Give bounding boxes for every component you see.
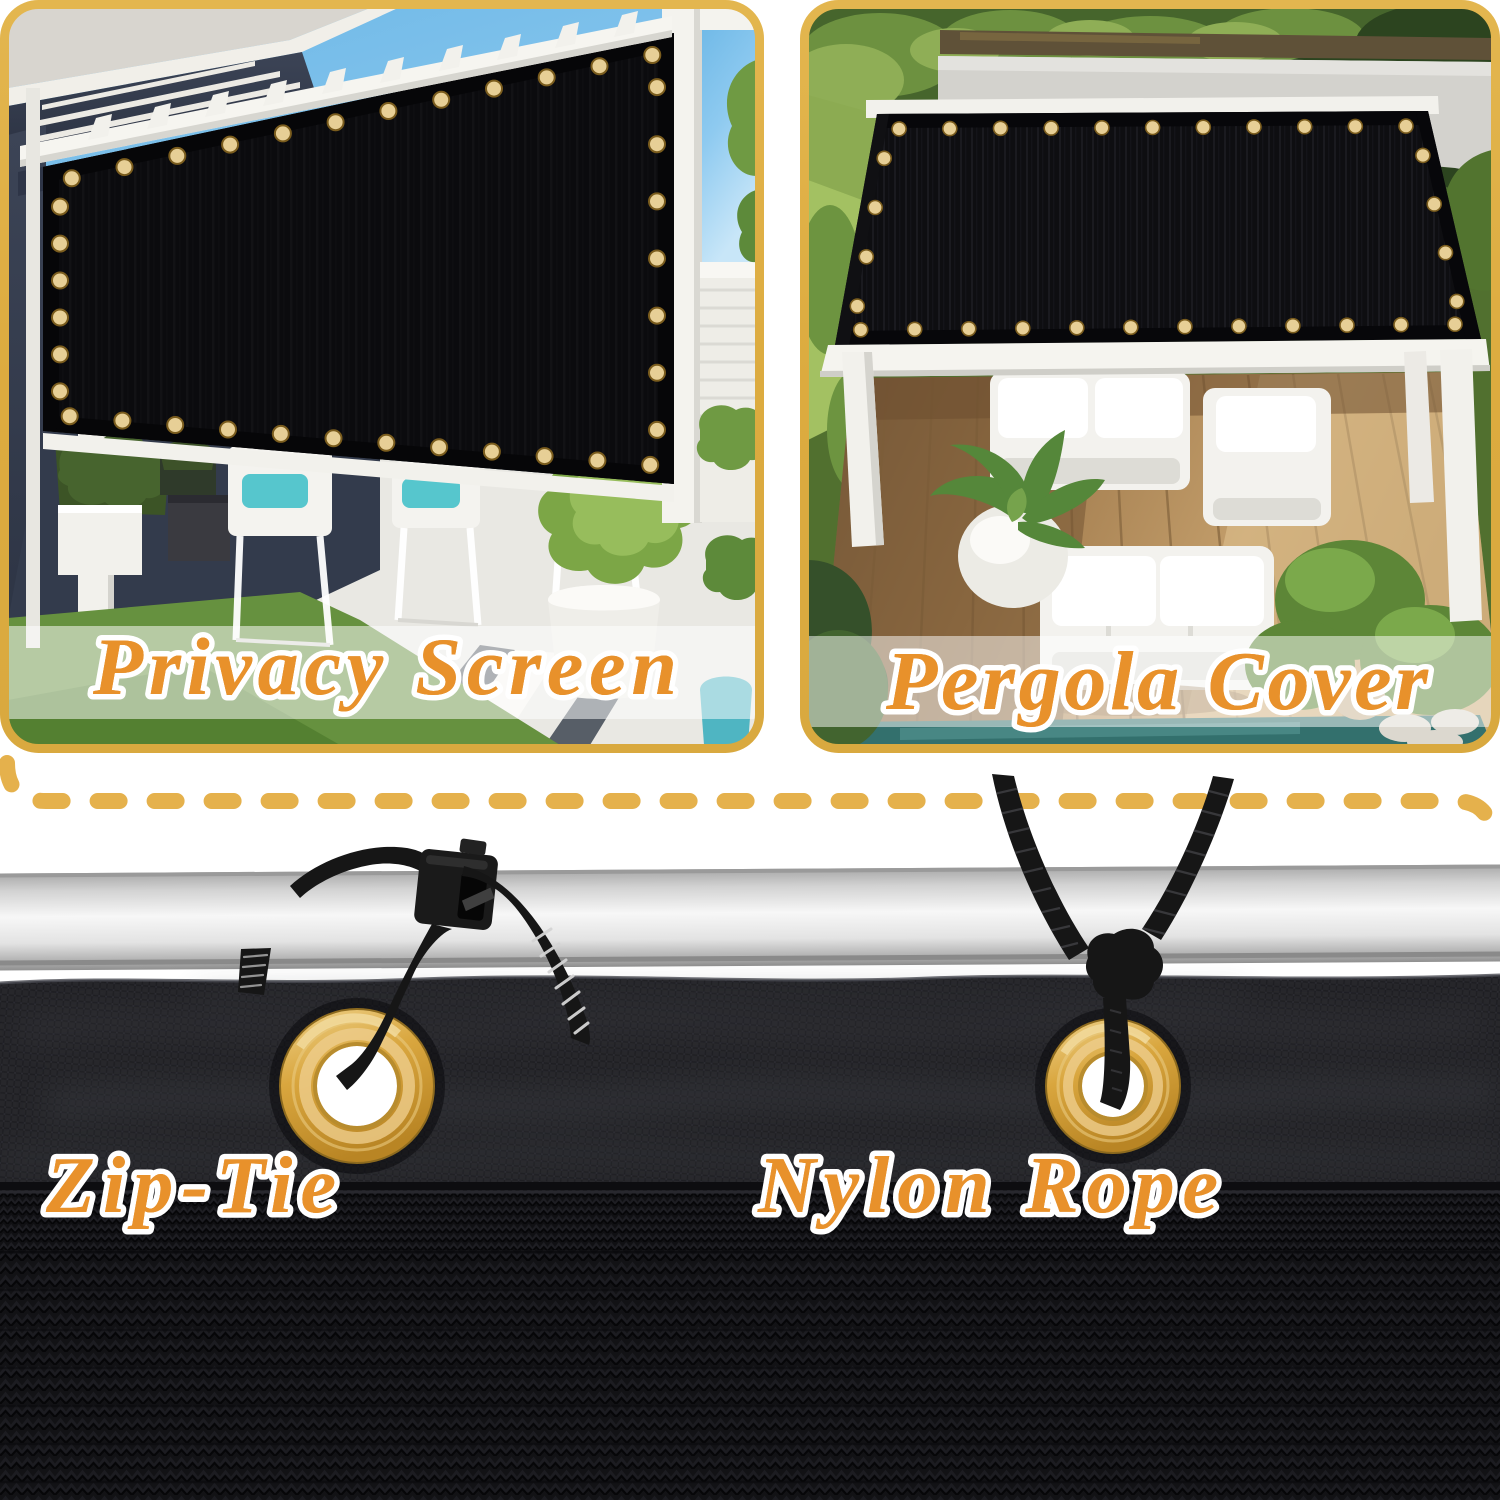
svg-text:Nylon Rope: Nylon Rope [757,1142,1218,1230]
svg-text:Zip-Tie: Zip-Tie [45,1142,336,1230]
svg-text:Pergola Cover: Pergola Cover [885,635,1429,728]
